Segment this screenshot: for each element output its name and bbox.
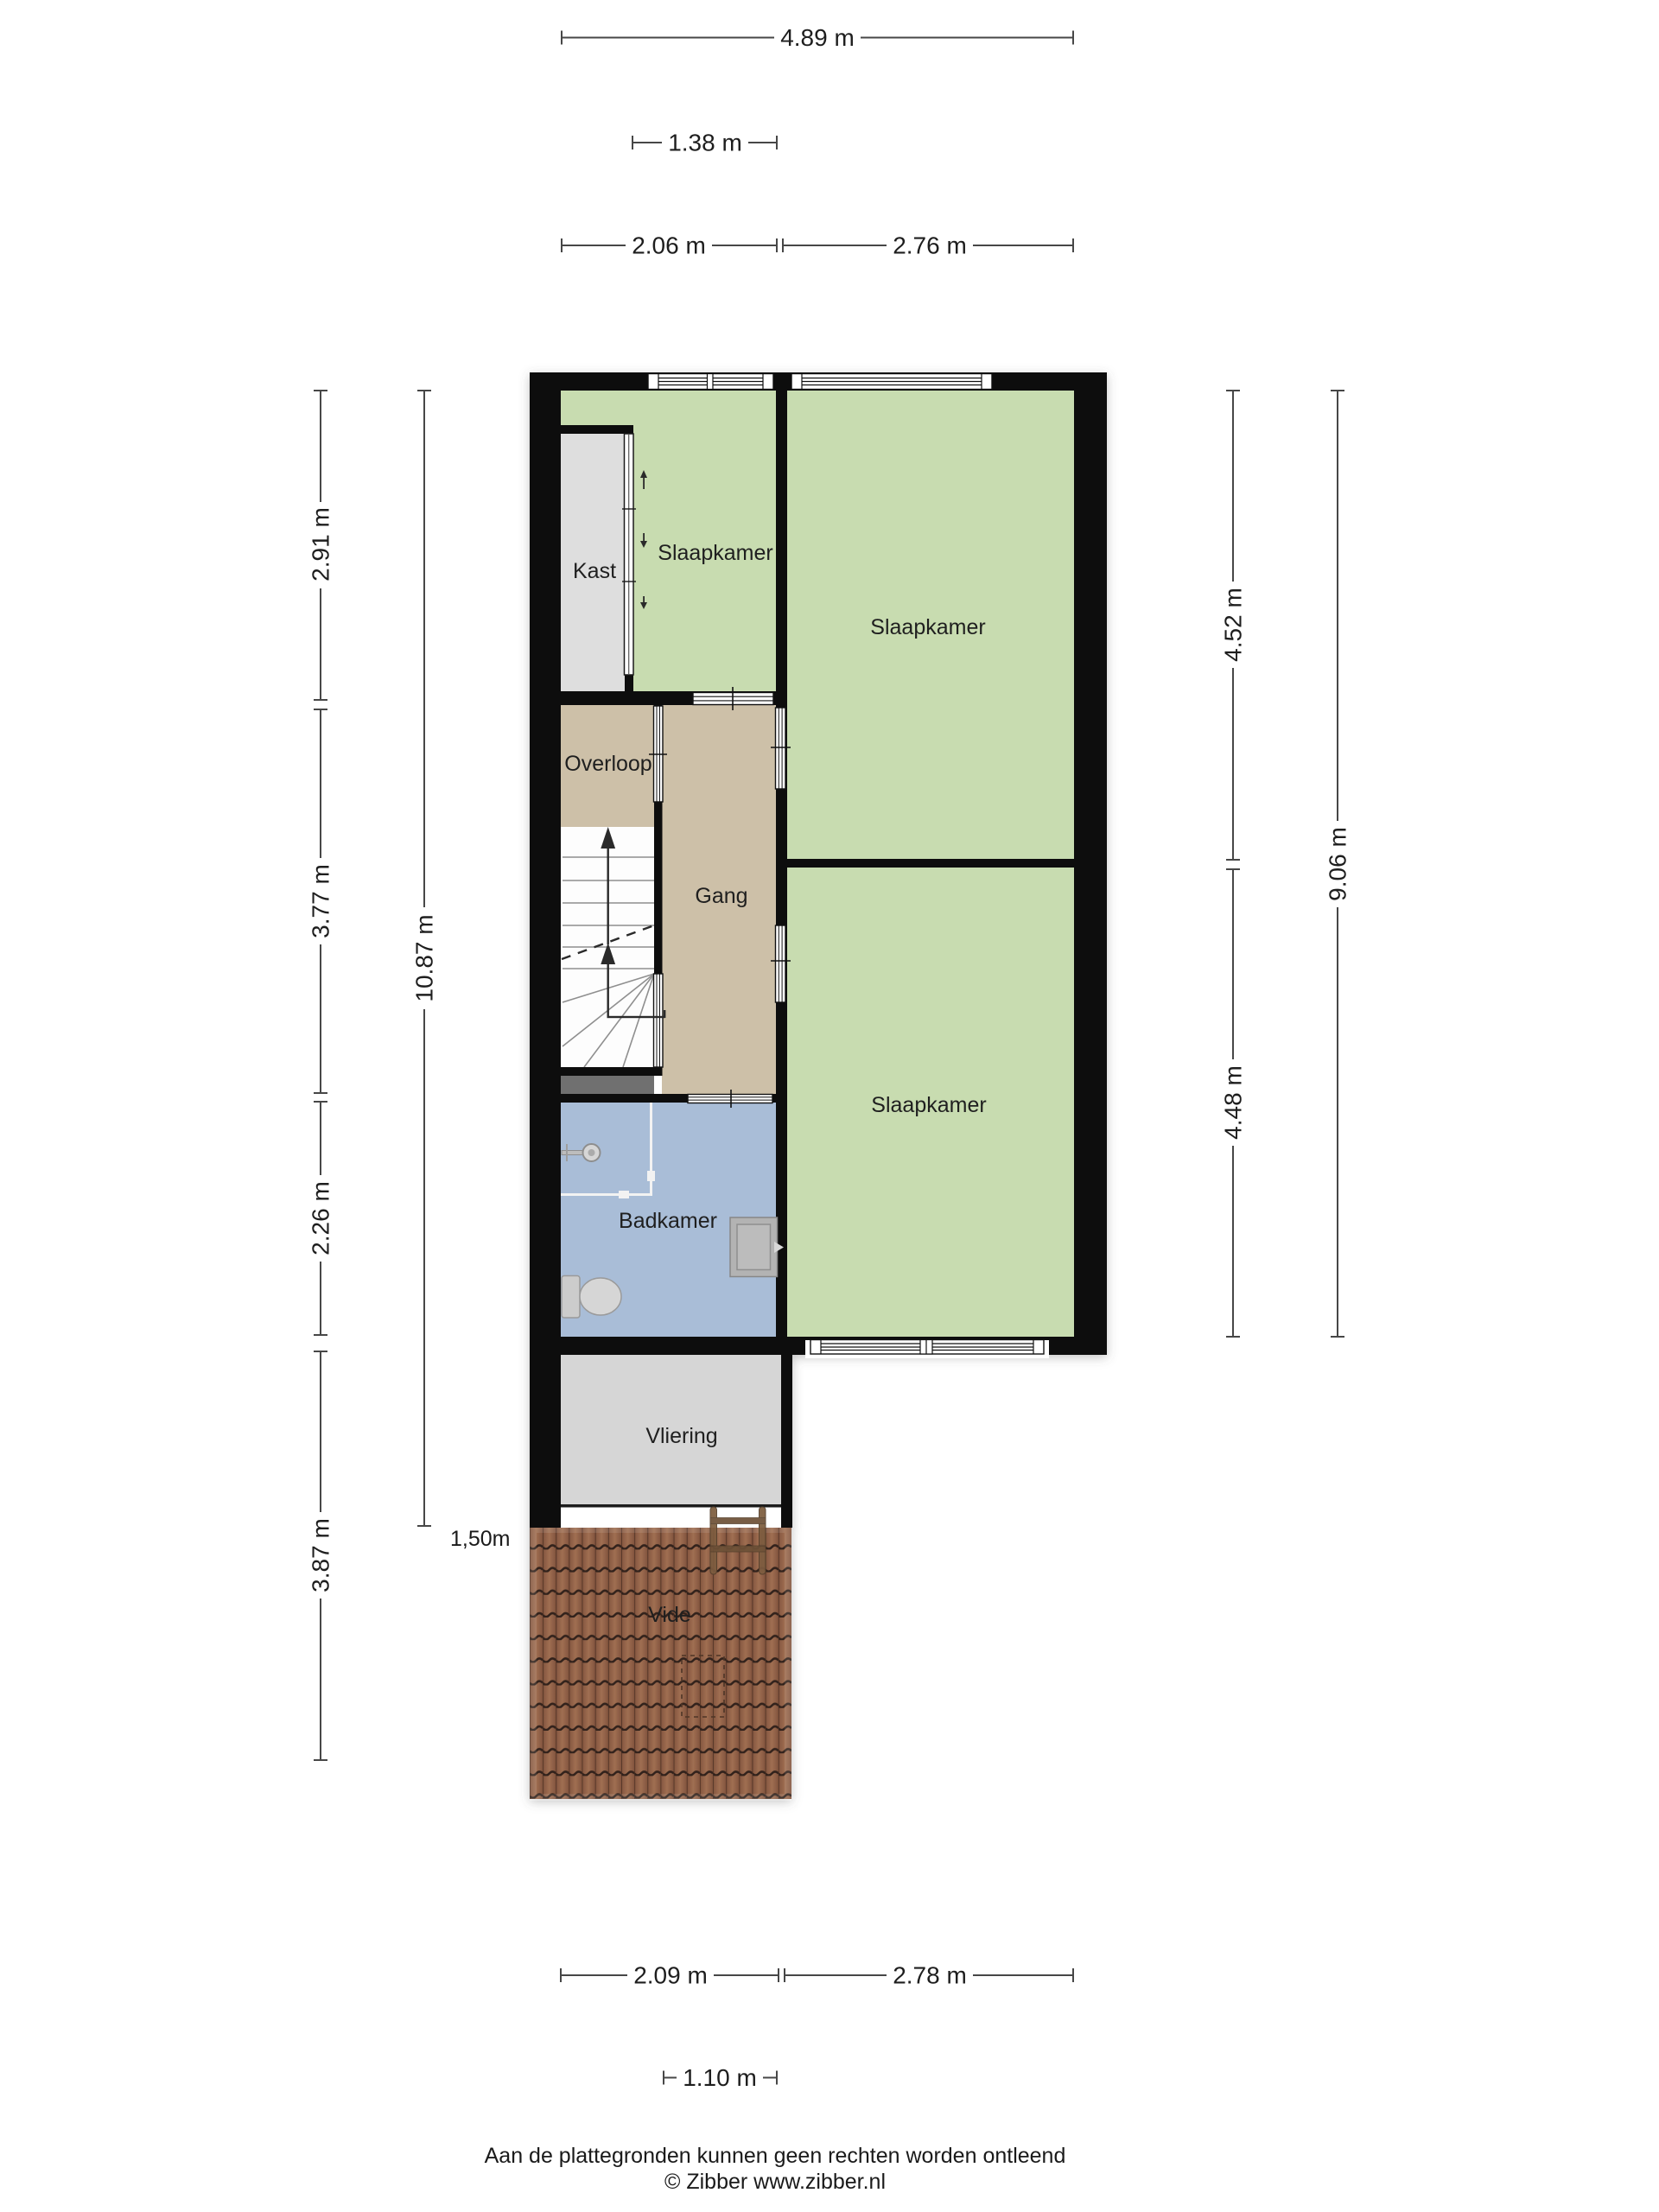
svg-text:4.48 m: 4.48 m xyxy=(1220,1065,1247,1140)
svg-text:4.52 m: 4.52 m xyxy=(1220,588,1247,662)
svg-text:2.76 m: 2.76 m xyxy=(893,232,967,259)
svg-text:2.78 m: 2.78 m xyxy=(893,1962,967,1989)
svg-text:10.87 m: 10.87 m xyxy=(411,914,438,1001)
svg-text:9.06 m: 9.06 m xyxy=(1325,827,1351,901)
svg-text:Overloop: Overloop xyxy=(564,752,652,776)
svg-text:1,50m: 1,50m xyxy=(450,1527,510,1551)
svg-text:Vliering: Vliering xyxy=(645,1424,717,1448)
svg-text:2.06 m: 2.06 m xyxy=(632,232,706,259)
svg-text:2.91 m: 2.91 m xyxy=(308,507,334,582)
svg-text:Slaapkamer: Slaapkamer xyxy=(871,1093,986,1117)
svg-text:© Zibber www.zibber.nl: © Zibber www.zibber.nl xyxy=(664,2170,886,2194)
svg-text:3.77 m: 3.77 m xyxy=(308,864,334,938)
svg-text:Slaapkamer: Slaapkamer xyxy=(870,615,985,639)
svg-text:Kast: Kast xyxy=(573,559,616,583)
svg-text:1.38 m: 1.38 m xyxy=(668,130,742,156)
svg-text:2.09 m: 2.09 m xyxy=(633,1962,708,1989)
svg-text:Slaapkamer: Slaapkamer xyxy=(658,541,772,565)
svg-text:3.87 m: 3.87 m xyxy=(308,1518,334,1592)
svg-text:Gang: Gang xyxy=(695,884,747,908)
svg-text:Vide: Vide xyxy=(648,1603,691,1627)
svg-text:Badkamer: Badkamer xyxy=(619,1209,717,1233)
svg-text:Aan de plattegronden kunnen ge: Aan de plattegronden kunnen geen rechten… xyxy=(485,2144,1066,2168)
svg-text:4.89 m: 4.89 m xyxy=(780,24,855,51)
svg-text:2.26 m: 2.26 m xyxy=(308,1181,334,1255)
svg-text:1.10 m: 1.10 m xyxy=(683,2064,757,2091)
